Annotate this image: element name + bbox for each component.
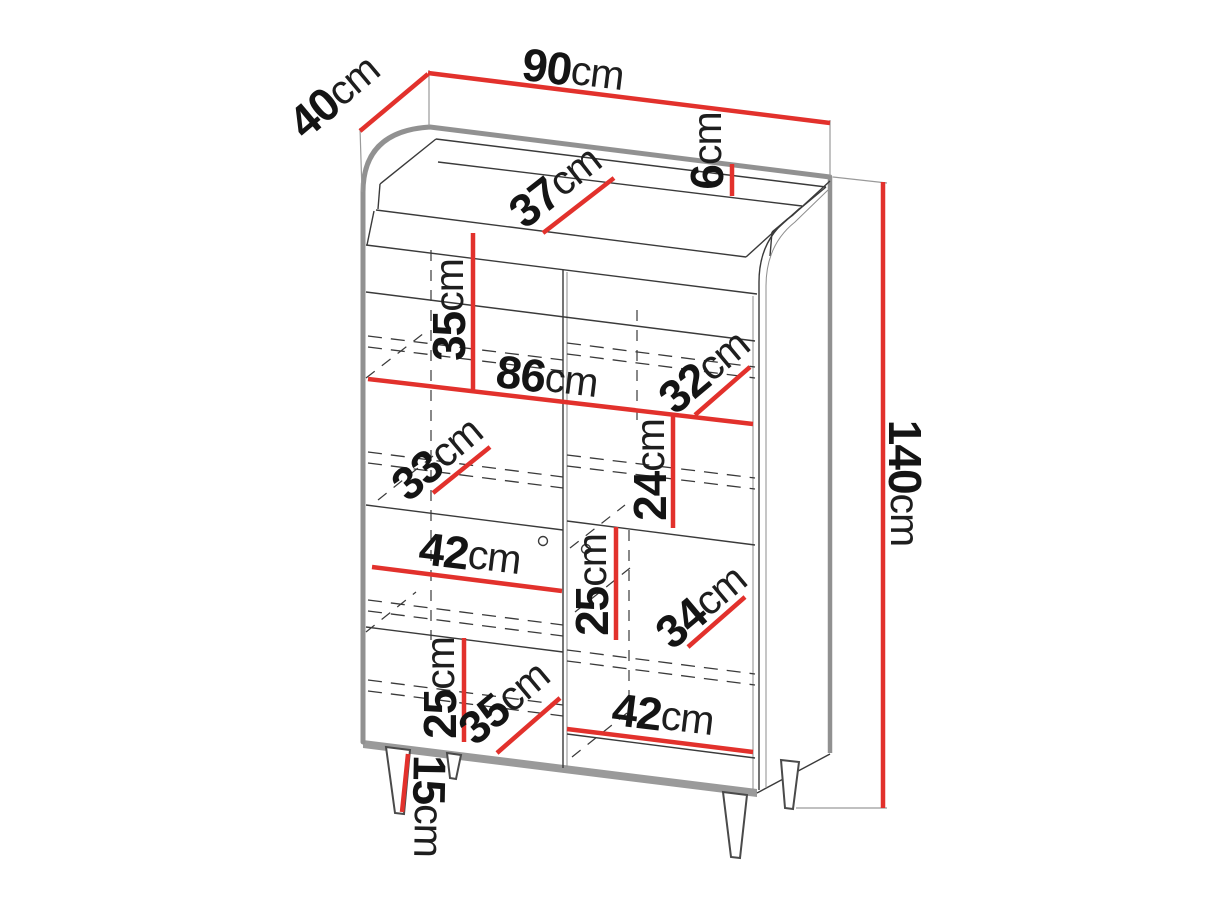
dim-width-label: 90cm xyxy=(519,38,626,102)
diagram-canvas: 40cm 90cm 37cm 6cm 35cm 86cm 32cm 24cm 3… xyxy=(0,0,1218,913)
dim-middle-section-label: 24cm xyxy=(624,419,676,521)
dim-depth-label: 40cm xyxy=(278,43,389,148)
dim-lower-shelf-right-label: 34cm xyxy=(645,553,756,658)
dimension-leg-height: 15cm xyxy=(402,754,456,857)
front-top-edge xyxy=(366,245,757,294)
front-right-corner xyxy=(759,181,830,790)
dimension-right-section-height: 25cm xyxy=(566,527,618,640)
dim-upper-section-label: 35cm xyxy=(423,259,475,361)
dimension-lower-shelf-depth-right: 34cm xyxy=(645,553,756,658)
dim-right-section-label: 25cm xyxy=(566,534,618,636)
dim-total-height-label: 140cm xyxy=(879,420,931,546)
dimension-right-compartment-width: 42cm xyxy=(567,683,753,752)
back-right-leg xyxy=(781,760,799,809)
front-right-leg xyxy=(723,792,747,858)
dim-leg-height-label: 15cm xyxy=(402,755,456,858)
dimension-middle-shelf-depth: 33cm xyxy=(381,405,492,510)
front-right-corner-inner xyxy=(766,190,828,788)
left-door-knob xyxy=(539,537,548,546)
dim-top-lip-label: 6cm xyxy=(681,112,733,189)
dimension-width: 90cm xyxy=(428,38,830,123)
dim-interior-width-label: 86cm xyxy=(493,345,600,409)
dimension-top-lip-height: 6cm xyxy=(681,112,733,196)
dimension-middle-section-height: 24cm xyxy=(624,415,676,528)
dimension-left-compartment-width: 42cm xyxy=(372,522,562,591)
dimension-total-height: 140cm xyxy=(879,182,931,808)
cabinet-dimension-diagram: 40cm 90cm 37cm 6cm 35cm 86cm 32cm 24cm 3… xyxy=(0,0,1218,913)
